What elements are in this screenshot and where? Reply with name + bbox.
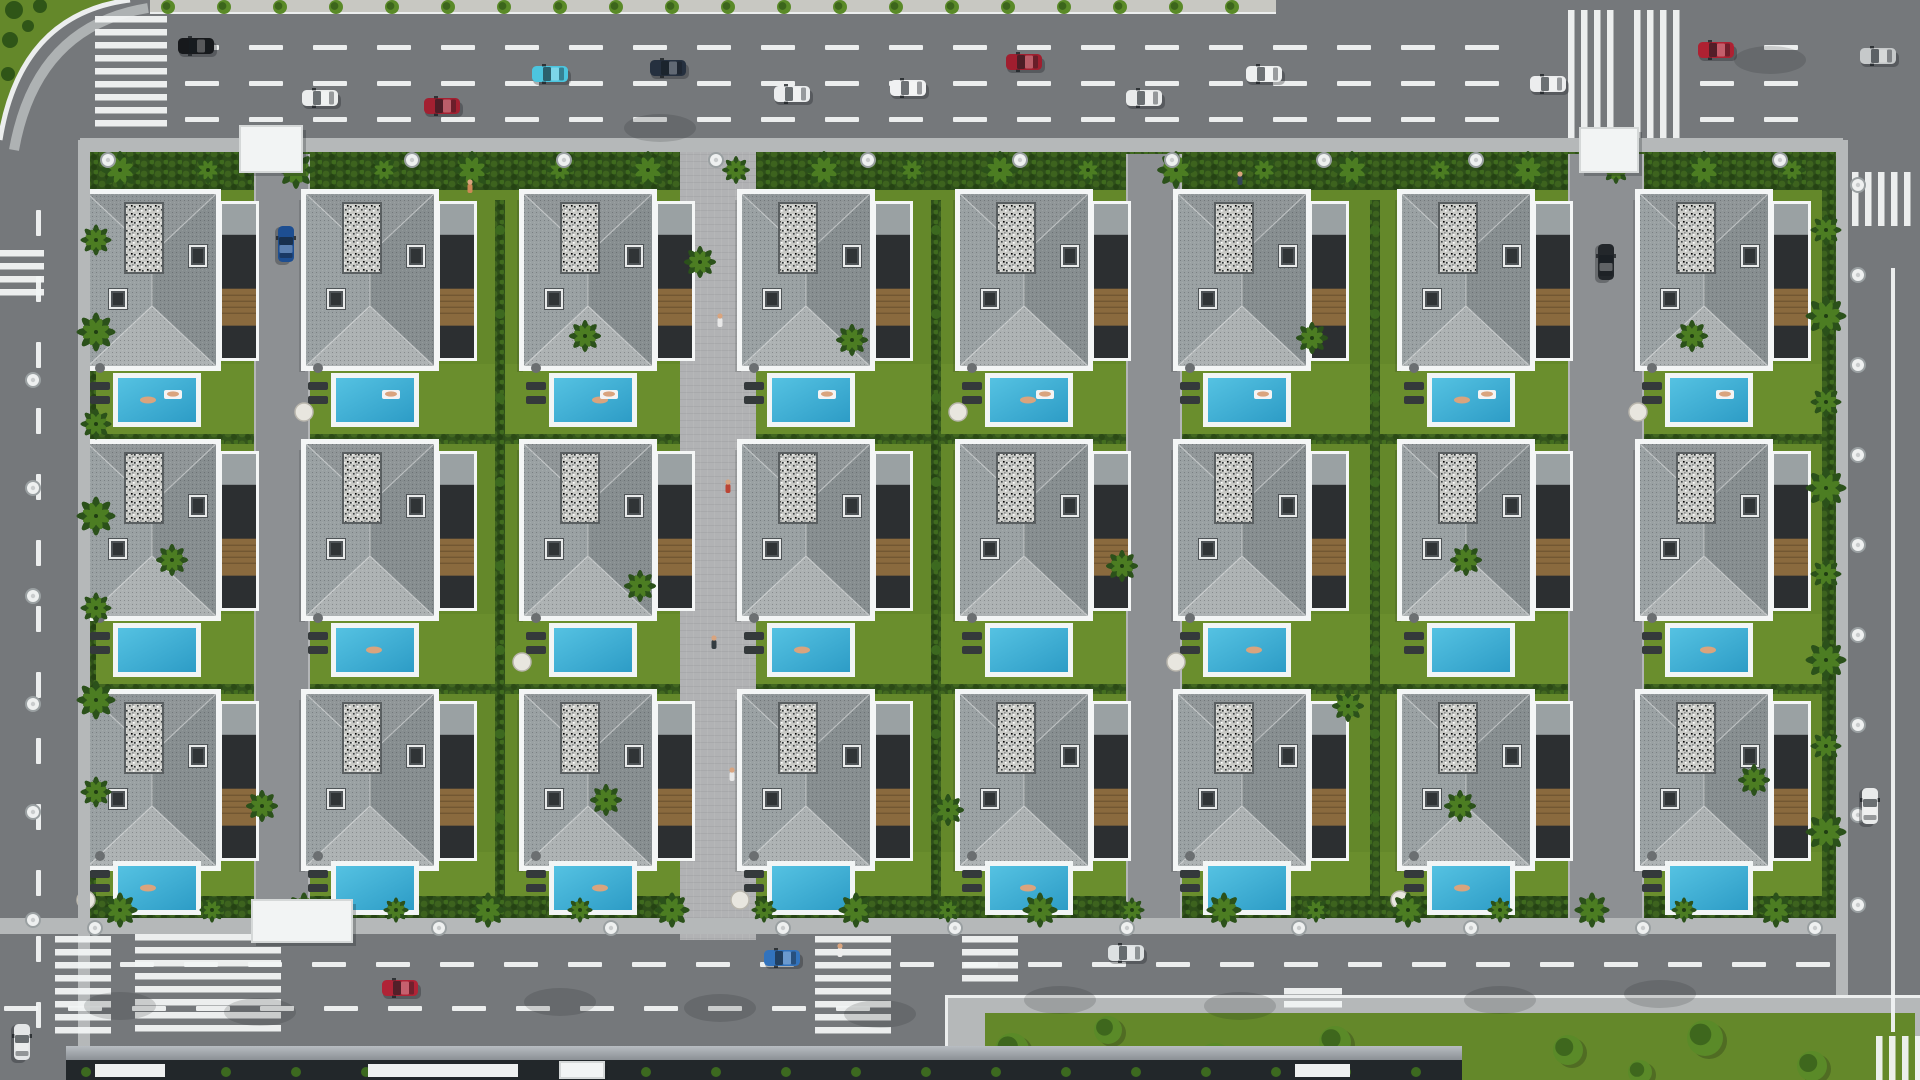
palm-tree [199,897,224,922]
lane-dash [953,81,987,86]
lamp-center [1170,158,1174,162]
lane-dash [1465,81,1499,86]
zebra-stripe [55,962,111,969]
car-windshield [313,91,321,105]
shrub [1370,645,1380,655]
deck-plank [658,557,692,558]
shrub [495,813,505,823]
palm-tree [370,156,398,184]
deck-plank [1094,545,1128,546]
car-windshield [661,61,669,75]
palm-crown [1824,830,1828,834]
palm-crown [1824,744,1828,748]
median-tree-shade [275,2,283,10]
car-mirror [1256,64,1260,66]
car-rear-window [1557,78,1562,91]
palm-tree [1250,156,1278,184]
palm-crown [946,808,950,812]
lane-dash [505,45,539,50]
sun-lounger [308,382,328,390]
deck-plank [222,307,256,308]
median-tree-shade [1059,2,1067,10]
lane-dash [1220,962,1254,967]
garden-table [749,613,759,623]
lamp-center [1856,543,1860,547]
chimney-flue [113,293,123,305]
car [532,64,571,85]
garden-table [967,851,977,861]
car-mirror [542,64,546,66]
lamp-center [106,158,110,162]
deck-plank [1312,551,1346,552]
swimmer-on-float [821,391,833,396]
chimney-flue [629,249,639,263]
park-tree-shade [1096,1019,1113,1036]
sun-lounger [1404,646,1424,654]
person [725,479,730,493]
deck-plank [222,551,256,552]
deck-plank [1312,563,1346,564]
sun-lounger [962,632,982,640]
lane-dash [1145,81,1179,86]
wing-roof [1312,454,1346,485]
shrub [1370,477,1380,487]
lane-dash-vertical [36,540,41,566]
lane-dash [313,81,347,86]
lane-dash [697,81,731,86]
lane-dash [1401,45,1435,50]
car-mirror [1540,92,1544,94]
deck-plank [876,557,910,558]
palm-crown [670,908,674,912]
car-roof [1145,92,1153,105]
deck-plank [658,295,692,296]
entrance-gate [1580,128,1642,176]
deck-plank [222,813,256,814]
person-body [726,484,731,493]
lane-dash [1401,81,1435,86]
car-windshield [393,981,401,995]
sun-lounger [526,646,546,654]
median-tree-shade [891,2,899,10]
wing-roof [440,204,474,235]
palm-tree [1738,764,1770,796]
palm-tree [81,409,112,440]
deck-plank [1536,557,1570,558]
chimney-flue [1065,249,1075,263]
lane-dash [1081,81,1115,86]
deck-plank [658,545,692,546]
street-lamp [405,153,419,167]
zebra-stripe [815,962,891,969]
lamp-center [1856,363,1860,367]
wing-roof [440,704,474,735]
car-mirror [1614,254,1616,258]
zebra-stripe [1891,172,1898,226]
chimney-flue [847,499,857,513]
lane-dash [1401,117,1435,122]
lamp-center [866,158,870,162]
canopy-plant [221,1067,231,1077]
canopy-plant [1131,1067,1141,1077]
street-lamp [948,921,962,935]
lane-dash [376,962,410,967]
deck-plank [1536,551,1570,552]
canopy-plant [851,1067,861,1077]
tree-shadow-on-road [624,114,696,142]
car [1246,64,1285,85]
shrub [931,225,941,235]
car-windshield [1599,255,1613,263]
palm-tree [1074,156,1102,184]
zebra-stripe [95,120,167,127]
palm-tree [383,897,408,922]
palm-crown [854,908,858,912]
garden-table [1647,613,1657,623]
chimney-flue [1507,499,1517,513]
palm-crown [1774,908,1778,912]
zebra-stripe [962,975,1018,982]
street-lamp [101,153,115,167]
deck-plank [1094,807,1128,808]
lamp-center [1641,926,1645,930]
pool-water [772,378,850,422]
swimmer-on-float [167,391,179,396]
lamp-center [31,486,35,490]
wing-roof [222,704,256,735]
palm-crown [1314,908,1318,912]
garden-table [95,363,105,373]
palm-crown [1438,168,1442,172]
canopy-plant [1201,1067,1211,1077]
gravel-strip [344,204,380,272]
car-roof [783,952,791,965]
palm-crown [94,514,98,518]
sun-lounger [1642,382,1662,390]
garden-table [95,851,105,861]
deck-plank [222,801,256,802]
wing-roof [1774,454,1808,485]
palm-crown [1458,804,1462,808]
lane-dash [697,45,731,50]
street-lamp [1317,153,1331,167]
pool-water [1670,378,1748,422]
gravel-strip [1678,204,1714,272]
person [1237,171,1242,185]
lane-dash [1348,962,1382,967]
person-body [730,772,735,781]
palm-tree [1509,151,1547,189]
lane-dash [1273,45,1307,50]
zebra-stripe [55,975,111,982]
car-windshield [1863,799,1877,807]
palm-crown [94,606,98,610]
palm-tree [1574,892,1609,927]
palm-crown [1038,908,1042,912]
car-rear-window [1887,50,1892,63]
zebra-stripe [55,1027,111,1034]
pool-water [1432,628,1510,672]
pool-water [1432,378,1510,422]
deck-plank [658,551,692,552]
car-roof [443,100,451,113]
lane-dash [440,962,474,967]
lane-dash [889,117,923,122]
car-rear-window [1864,815,1877,820]
median-tree-shade [723,2,731,10]
wing-roof [1094,204,1128,235]
gate-canopy [560,1062,604,1078]
deck-plank [440,545,474,546]
deck-plank [876,807,910,808]
palm-tree [1303,897,1328,922]
entrance-gate [240,126,306,176]
street-lamp [1464,921,1478,935]
road-median [150,0,1276,14]
tree-shadow-on-road [1734,46,1806,74]
deck-plank [1536,295,1570,296]
street-lamp [26,481,40,495]
lane-dash [889,45,923,50]
palm-tree [629,151,667,189]
palm-crown [1350,168,1354,172]
palm-tree [1806,812,1847,853]
street-lamp [1851,718,1865,732]
palm-crown [1824,486,1828,490]
wing-roof [658,204,692,235]
car-mirror [784,84,788,86]
lane-dash [1284,962,1318,967]
street-lamp [1851,538,1865,552]
person [711,635,716,649]
lane-dash [1465,117,1499,122]
gravel-strip [1678,454,1714,522]
canopy-dark [66,1058,1462,1080]
palm-crown [1682,908,1686,912]
sun-lounger [90,632,110,640]
zebra-stripe [0,250,44,257]
deck-plank [222,545,256,546]
street-lamp [1773,153,1787,167]
lamp-center [609,926,613,930]
deck-plank [1774,313,1808,314]
canopy-plant [921,1067,931,1077]
deck-plank [658,563,692,564]
palm-crown [1590,908,1594,912]
shrub [931,645,941,655]
car [11,1024,32,1063]
sun-lounger [962,870,982,878]
chimney-flue [1507,249,1517,263]
car-mirror [542,82,546,84]
chimney-flue [1665,293,1675,305]
sun-lounger [308,646,328,654]
palm-tree [1022,892,1057,927]
gravel-strip [1216,704,1252,772]
sun-lounger [744,632,764,640]
parasol [295,403,313,421]
canopy-kiosk [95,1064,165,1077]
lane-dash [249,117,283,122]
car-mirror [1118,943,1122,945]
palm-crown [1222,908,1226,912]
street-lamp [1469,153,1483,167]
person [717,313,722,327]
deck-plank [876,795,910,796]
gravel-strip [780,704,816,772]
deck-plank [1774,545,1808,546]
lane-dash [1273,117,1307,122]
top-sidewalk [80,138,1843,152]
gravel-strip [344,454,380,522]
median-tree-shade [1227,2,1235,10]
wing-roof [1536,704,1570,735]
car-windshield [1119,946,1127,960]
street-lamp [1636,921,1650,935]
palm-tree [77,681,116,720]
street-lamp [776,921,790,935]
chimney-flue [1283,499,1293,513]
deck-plank [1312,557,1346,558]
lane-dash [1156,962,1190,967]
lamp-center [1474,158,1478,162]
deck-plank [1312,295,1346,296]
lane-dash [1540,962,1574,967]
tree-shadow-on-road [84,992,156,1020]
deck-plank [876,563,910,564]
car-mirror [1016,52,1020,54]
zebra-stripe [95,81,167,88]
zebra-stripe [1889,1036,1896,1080]
palm-crown [94,330,98,334]
palm-tree [1450,544,1482,576]
lane-dash [1604,962,1638,967]
deck-plank [1094,801,1128,802]
deck-plank [440,313,474,314]
car-windshield [1137,91,1145,105]
person-head [711,635,716,640]
shrub [495,393,505,403]
tree-shadow-on-road [844,1000,916,1028]
lamp-center [1856,453,1860,457]
palm-tree [590,784,622,816]
palm-crown [646,168,650,172]
south-canopy-strip [66,1046,1462,1080]
palm-tree [624,570,656,602]
lane-dash [1465,45,1499,50]
median-tree-shade [219,2,227,10]
chimney-flue [549,543,559,555]
sun-lounger [90,382,110,390]
palm-crown [170,558,174,562]
deck-plank [876,313,910,314]
swimmer [1246,647,1262,654]
chimney-flue [1203,793,1213,805]
deck-plank [1312,807,1346,808]
deck-plank [876,301,910,302]
zebra-stripe [1581,10,1588,138]
lane-dash [1700,117,1734,122]
deck-plank [1536,313,1570,314]
lane-dash [441,45,475,50]
car-roof [1864,807,1877,815]
gate-canopy [252,900,352,942]
zebra-stripe [1647,10,1654,138]
palm-tree [81,225,112,256]
gravel-strip [126,454,162,522]
chimney-flue [629,749,639,763]
deck-plank [1774,801,1808,802]
palm-crown [638,584,642,588]
lamp-center [1856,183,1860,187]
shrub [931,561,941,571]
person-body [718,318,723,327]
chimney-flue [193,249,203,263]
wing-roof [658,704,692,735]
zebra-stripe [55,949,111,956]
street-lamp [557,153,571,167]
palm-crown [206,168,210,172]
lane-dash [1028,962,1062,967]
palm-crown [558,168,562,172]
lane-dash [1209,117,1243,122]
car-roof [551,68,559,81]
lane-dash [1209,81,1243,86]
palm-crown [1702,168,1706,172]
car-rear-window [801,88,806,101]
deck-plank [876,813,910,814]
deck-plank [1312,301,1346,302]
person-head [717,313,722,318]
shrub [495,225,505,235]
palm-crown [1406,908,1410,912]
chimney-flue [1065,499,1075,513]
wing-roof [440,454,474,485]
car-mirror [312,106,316,108]
car-mirror [1860,798,1862,802]
sun-lounger [1642,884,1662,892]
zebra-stripe [815,949,891,956]
lamp-center [1856,903,1860,907]
sun-lounger [1180,632,1200,640]
chimney-flue [629,499,639,513]
zebra-stripe [1878,172,1885,226]
zebra-stripe [0,263,44,270]
lane-dash [1017,117,1051,122]
sun-lounger [744,646,764,654]
zebra-stripe [1915,1036,1920,1080]
palm-tree [102,892,137,927]
sun-lounger [526,870,546,878]
person-head [729,767,734,772]
car-mirror [434,114,438,116]
car-rear-window [16,1051,29,1056]
car [424,96,463,117]
car-roof [280,245,293,253]
tree-shadow-on-road [1204,992,1276,1020]
chimney-flue [1745,249,1755,263]
car [1530,74,1569,95]
lane-dash [1764,117,1798,122]
palm-crown [1130,908,1134,912]
swimmer [592,885,608,892]
lamp-center [1018,158,1022,162]
sun-lounger [1180,870,1200,878]
lane-dash [569,81,603,86]
car-mirror [660,58,664,60]
deck-plank [1094,313,1128,314]
park-tree-shade [1555,1038,1573,1056]
